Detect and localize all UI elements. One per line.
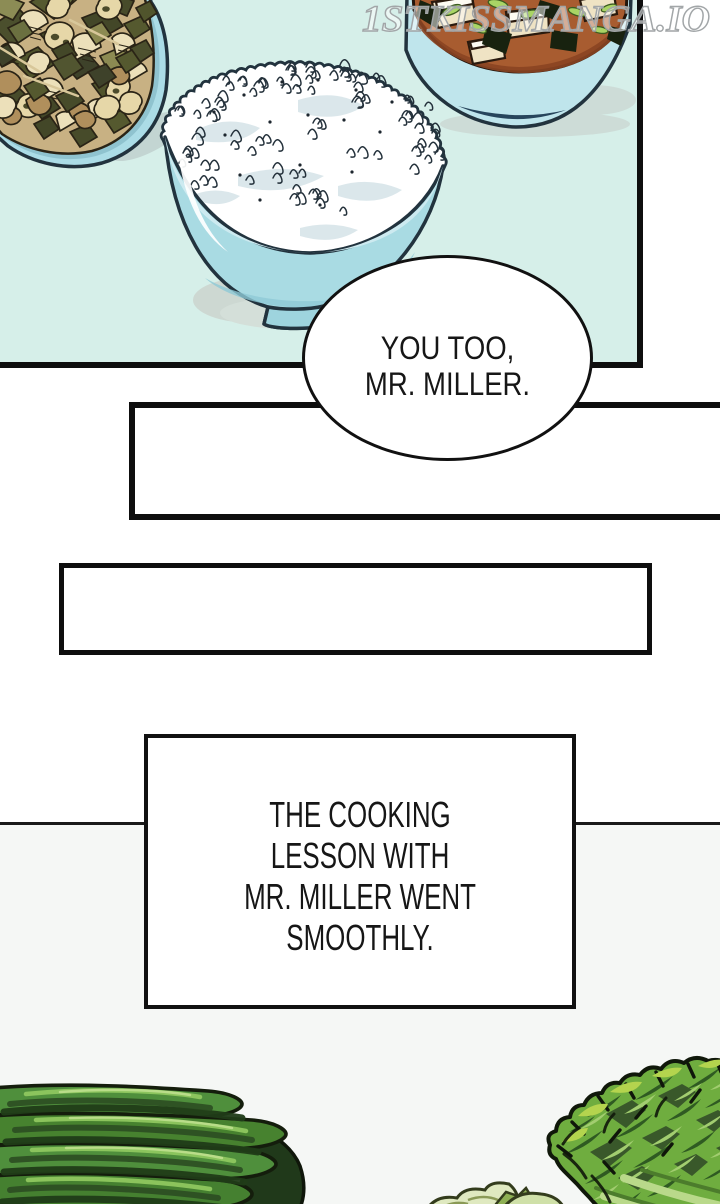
svg-text:1STKISSMANGA.IO: 1STKISSMANGA.IO — [362, 0, 710, 40]
